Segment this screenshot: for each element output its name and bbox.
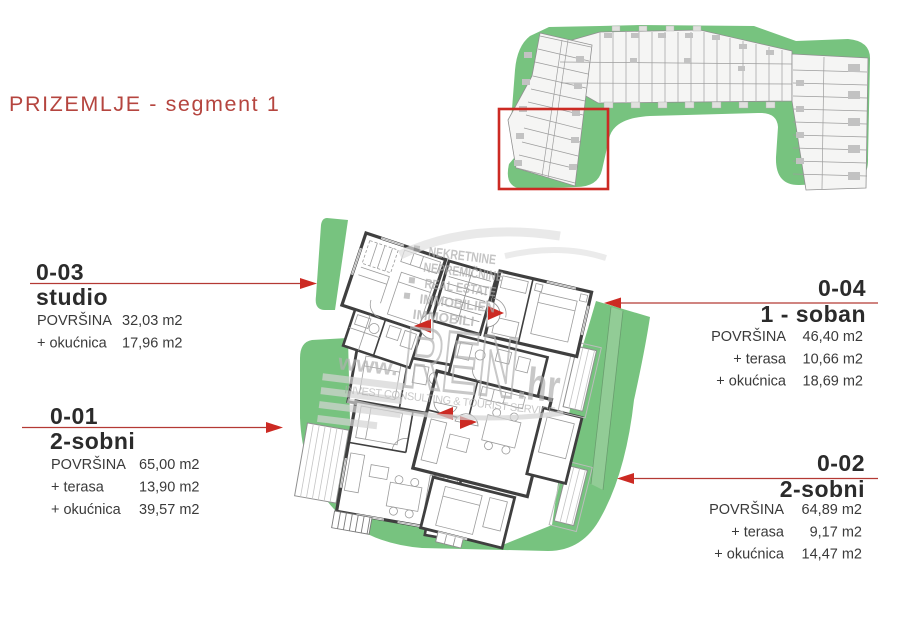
svg-text:+ okućnica: + okućnica — [716, 374, 787, 390]
svg-text:9,17 m2: 9,17 m2 — [810, 524, 862, 540]
svg-text:18,69 m2: 18,69 m2 — [803, 374, 863, 390]
svg-text:10,66 m2: 10,66 m2 — [803, 351, 863, 367]
svg-text:+ terasa: + terasa — [731, 524, 785, 540]
svg-text:PRIZEMLJE - segment 1: PRIZEMLJE - segment 1 — [9, 92, 280, 116]
svg-text:+ terasa: + terasa — [733, 351, 787, 367]
svg-text:46,40 m2: 46,40 m2 — [803, 329, 863, 345]
svg-text:0-01: 0-01 — [50, 403, 98, 429]
svg-text:POVRŠINA: POVRŠINA — [709, 501, 784, 518]
svg-text:POVRŠINA: POVRŠINA — [51, 456, 126, 473]
svg-text:17,96 m2: 17,96 m2 — [122, 336, 182, 352]
svg-text:+ okućnica: + okućnica — [51, 502, 122, 518]
svg-text:studio: studio — [36, 284, 108, 310]
svg-text:64,89 m2: 64,89 m2 — [802, 502, 862, 518]
svg-text:+ okućnica: + okućnica — [714, 547, 785, 563]
svg-text:13,90 m2: 13,90 m2 — [139, 480, 199, 496]
svg-text:2-sobni: 2-sobni — [50, 428, 135, 454]
svg-text:65,00 m2: 65,00 m2 — [139, 457, 199, 473]
svg-text:32,03 m2: 32,03 m2 — [122, 313, 182, 329]
svg-text:+ terasa: + terasa — [51, 480, 105, 496]
svg-text:POVRŠINA: POVRŠINA — [37, 312, 112, 329]
svg-text:14,47 m2: 14,47 m2 — [802, 547, 862, 563]
svg-text:2-sobni: 2-sobni — [780, 476, 865, 502]
svg-text:39,57 m2: 39,57 m2 — [139, 502, 199, 518]
svg-text:0-04: 0-04 — [818, 275, 866, 301]
svg-text:1 - soban: 1 - soban — [761, 301, 866, 327]
svg-text:0-02: 0-02 — [817, 450, 865, 476]
svg-text:POVRŠINA: POVRŠINA — [711, 328, 786, 345]
svg-text:+ okućnica: + okućnica — [37, 336, 108, 352]
svg-text:0-03: 0-03 — [36, 259, 84, 285]
